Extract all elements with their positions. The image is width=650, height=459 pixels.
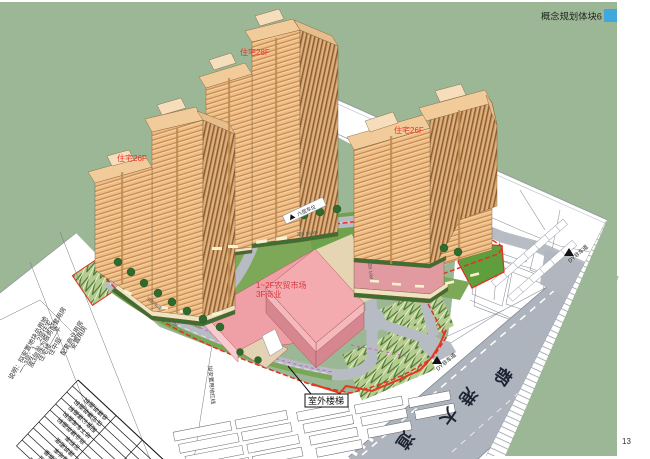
svg-text:室外楼梯: 室外楼梯 — [308, 395, 344, 406]
svg-text:概念规划体块6: 概念规划体块6 — [541, 11, 602, 22]
svg-text:住宅26F: 住宅26F — [394, 125, 424, 135]
svg-text:3F商业: 3F商业 — [256, 289, 281, 299]
svg-text:13: 13 — [622, 437, 631, 446]
svg-text:住宅28F: 住宅28F — [240, 47, 270, 57]
svg-text:1~2F农贸市场: 1~2F农贸市场 — [256, 280, 306, 290]
svg-text:住宅26F: 住宅26F — [117, 153, 147, 163]
